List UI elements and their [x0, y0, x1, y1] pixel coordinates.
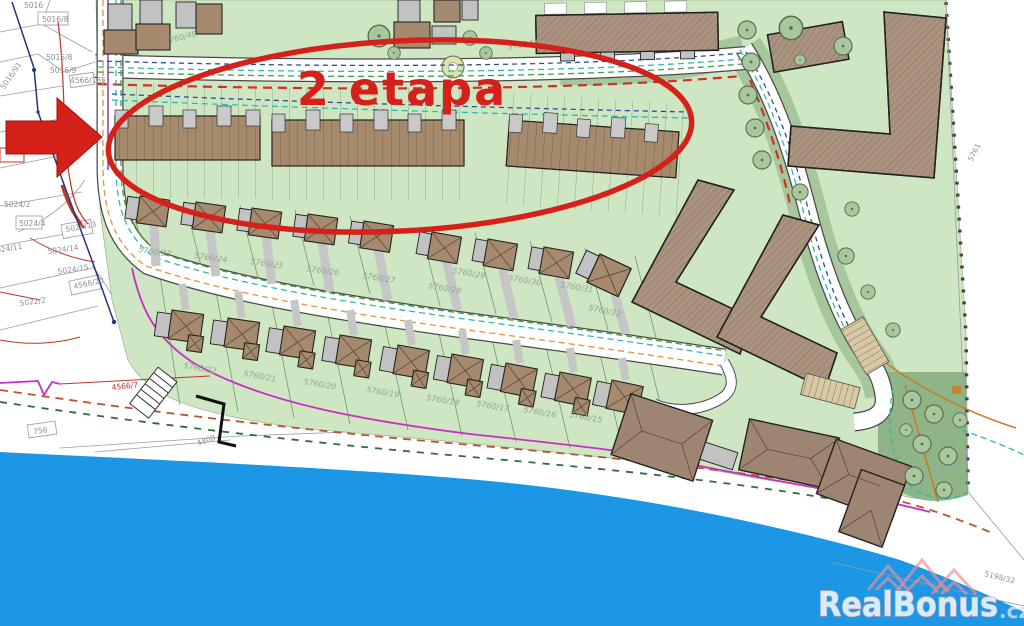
parcel-label: 5198/32: [984, 569, 1017, 585]
parcel-label: 5016: [24, 1, 43, 10]
site-plan-map: 5016 5016/8 5015/8 5016/9 4566/185 5016/…: [0, 0, 1024, 626]
red-arrow: [6, 98, 102, 177]
parcel-label: 5024/11: [0, 242, 23, 256]
parcel-label: 4566/185: [70, 76, 106, 85]
watermark-tld: .cz: [999, 599, 1024, 623]
parcel-label: 5016/91: [0, 60, 24, 91]
parcel-label: 5016/8: [42, 15, 69, 24]
parcel-label: 5024/2: [4, 200, 31, 209]
parcel-label: 5761: [966, 142, 983, 163]
parcel-label: 5015/8: [46, 53, 73, 62]
parcel-label: 4566/7: [111, 380, 138, 392]
watermark-brand: RealBonus: [818, 585, 998, 625]
stage-label: 2 etapa: [297, 62, 507, 116]
parcel-label: 5022/2: [19, 295, 47, 308]
parcel-label: 5024/15: [57, 263, 89, 276]
parcel-label: 5016/9: [50, 66, 77, 75]
parcel-label: 5024/4: [19, 219, 46, 228]
site-plan-screenshot: 5016 5016/8 5015/8 5016/9 4566/185 5016/…: [0, 0, 1024, 626]
parcel-label: 4808: [196, 433, 217, 448]
